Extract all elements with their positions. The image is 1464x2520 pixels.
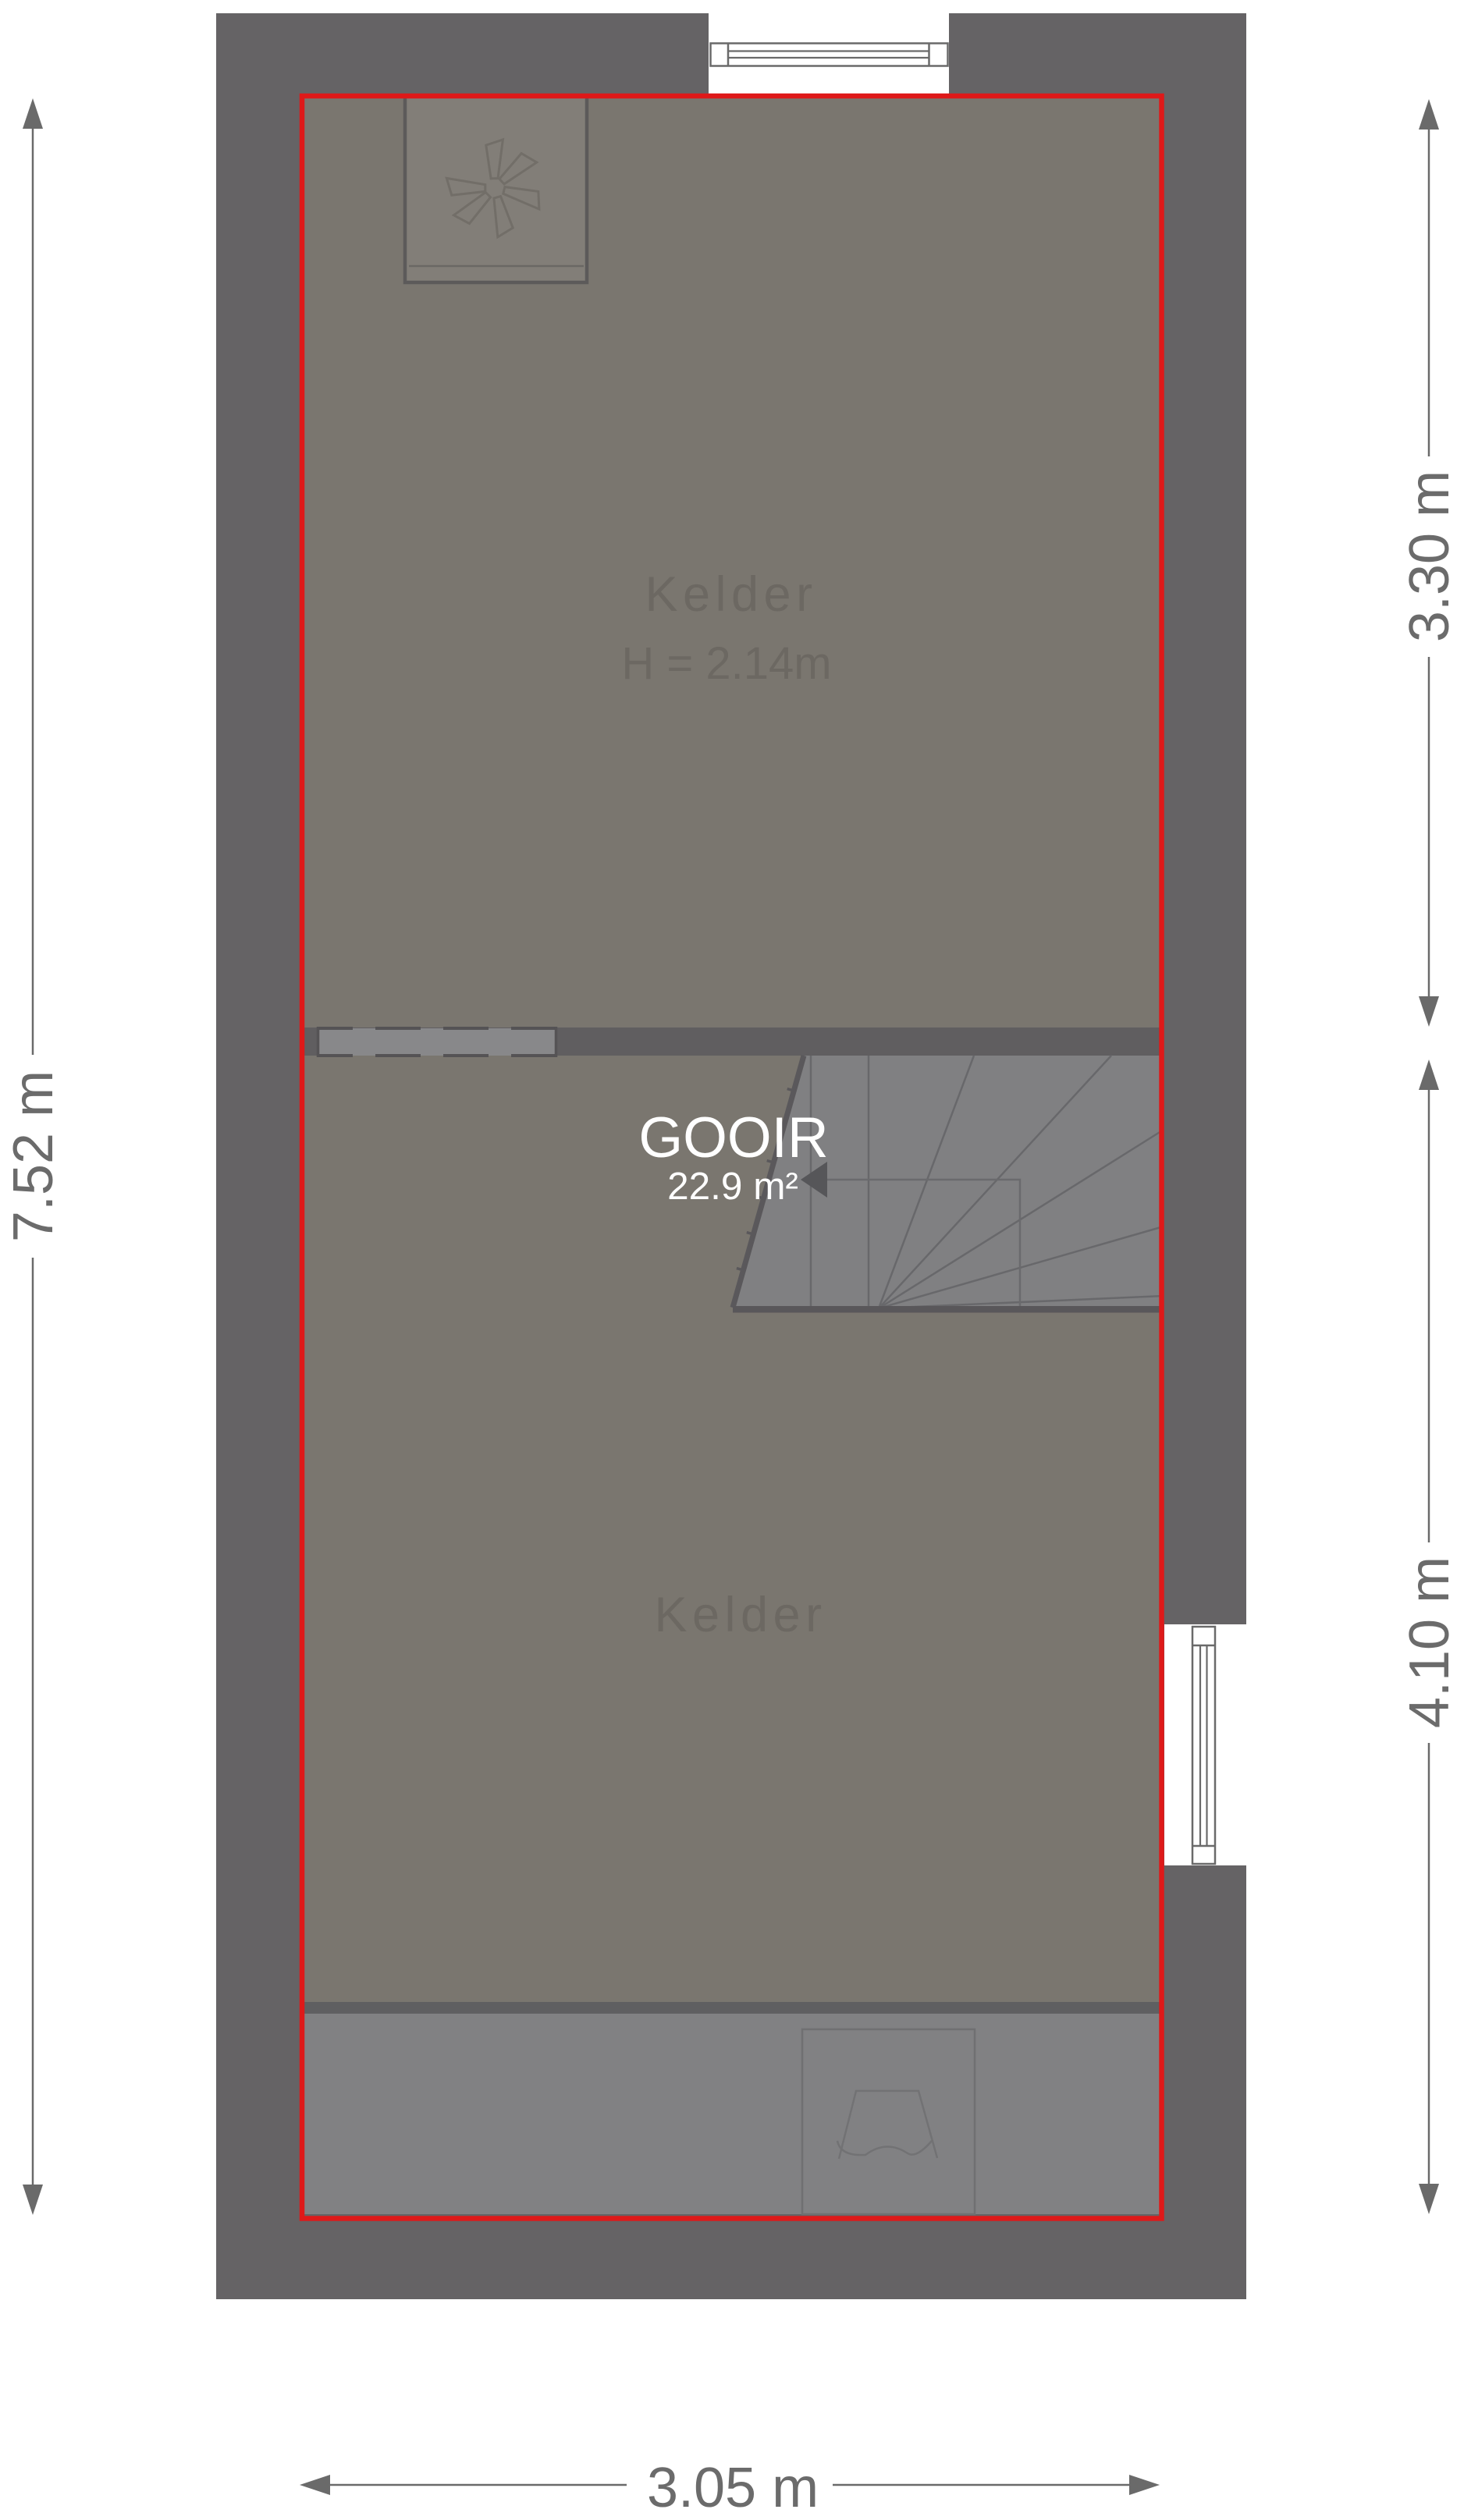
svg-text:H = 2.14m: H = 2.14m	[621, 638, 831, 689]
svg-text:Kelder: Kelder	[645, 567, 817, 622]
svg-text:22.9 m²: 22.9 m²	[667, 1165, 798, 1208]
svg-text:3.05 m: 3.05 m	[647, 2457, 819, 2519]
svg-text:7.52 m: 7.52 m	[2, 1070, 65, 1242]
svg-text:4.10 m: 4.10 m	[1398, 1556, 1461, 1728]
svg-text:GOOIR: GOOIR	[638, 1106, 828, 1169]
svg-text:3.30 m: 3.30 m	[1398, 470, 1461, 642]
svg-text:Kelder: Kelder	[654, 1588, 826, 1642]
